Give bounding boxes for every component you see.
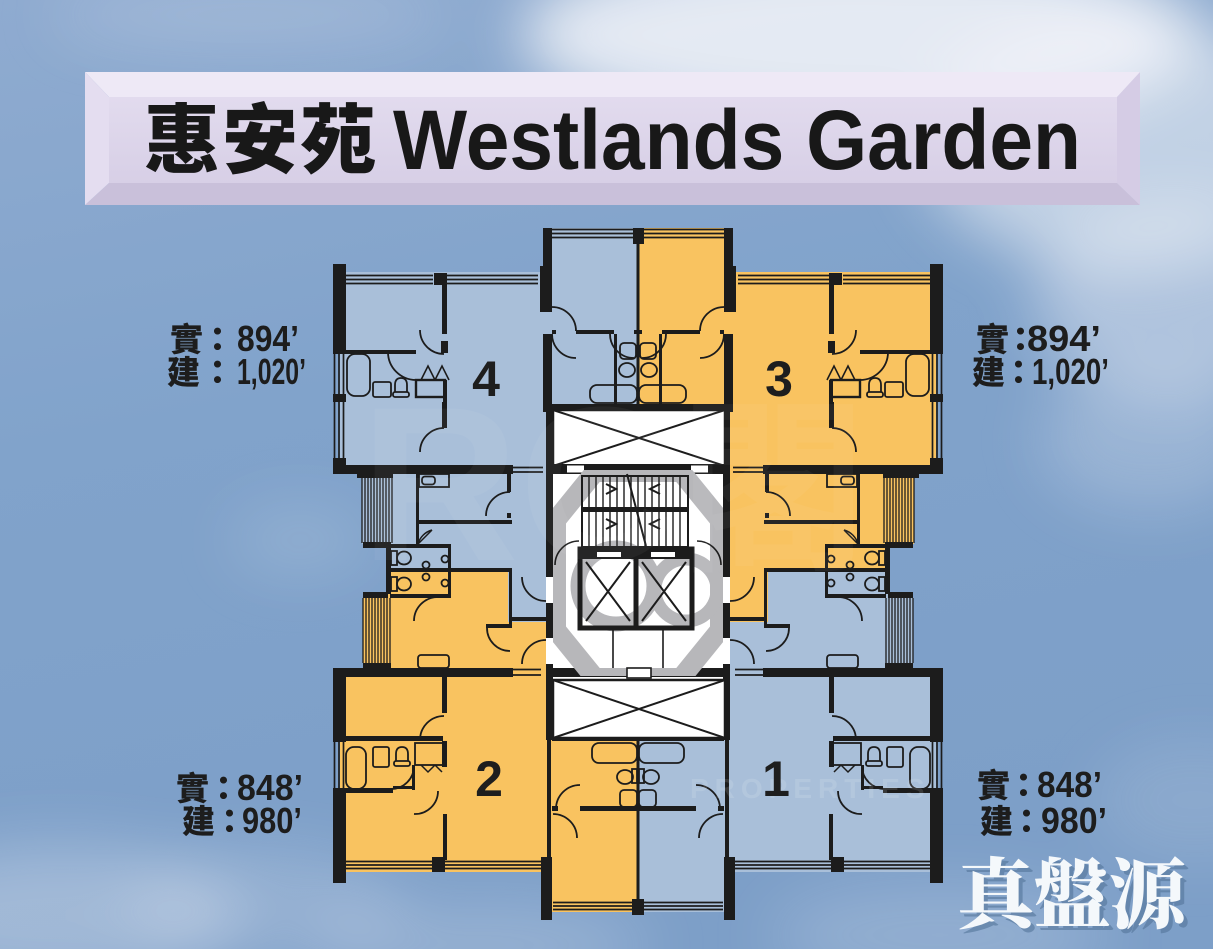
svg-text:1: 1	[762, 751, 790, 807]
svg-text:Westlands Garden: Westlands Garden	[393, 93, 1081, 187]
svg-text:RC: RC	[360, 361, 678, 607]
svg-text:980’: 980’	[1041, 800, 1107, 841]
svg-text:3: 3	[765, 351, 793, 407]
svg-text:848’: 848’	[1037, 764, 1102, 805]
svg-text:4: 4	[472, 351, 500, 407]
svg-text:980’: 980’	[242, 800, 302, 841]
svg-text:PROPERTIES: PROPERTIES	[690, 773, 930, 804]
svg-text:閣: 閣	[680, 389, 865, 595]
svg-text:1,020’: 1,020’	[237, 351, 306, 392]
svg-text:1,020’: 1,020’	[1032, 351, 1109, 392]
svg-text:2: 2	[475, 751, 503, 807]
